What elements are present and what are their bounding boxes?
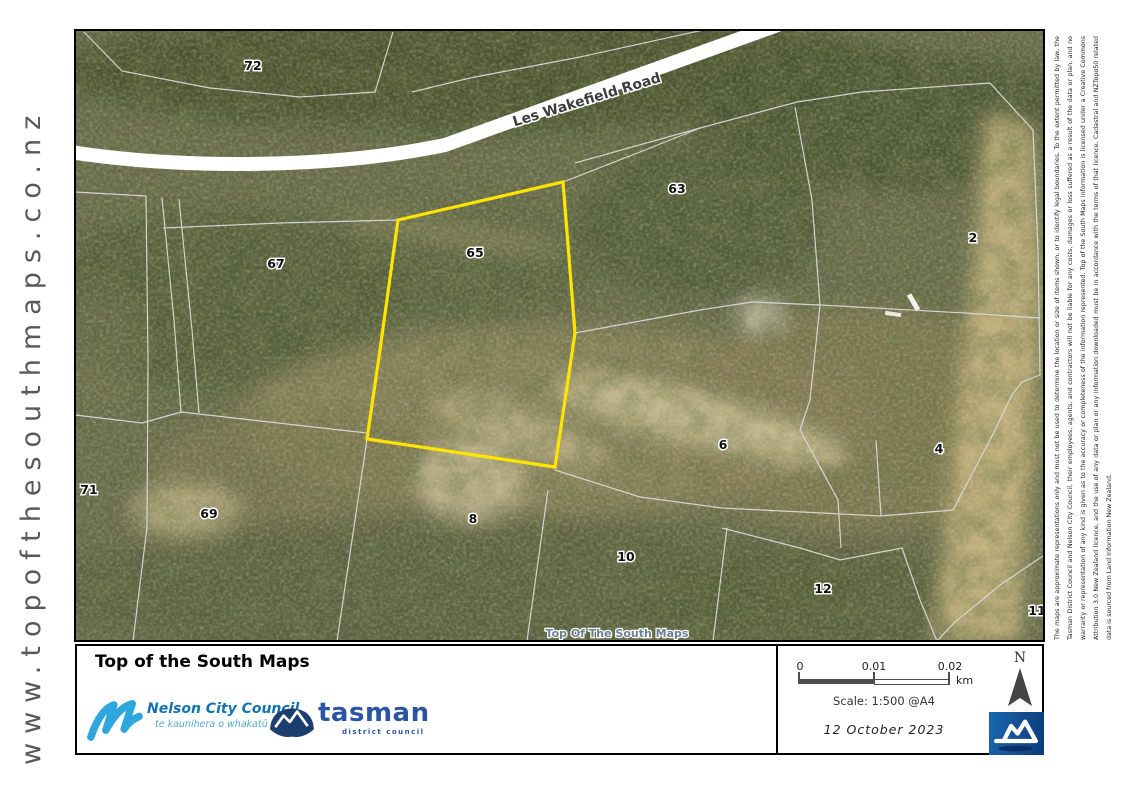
parcel-label: 12 <box>814 581 831 596</box>
nelson-swoosh-icon <box>85 698 145 744</box>
top-of-the-south-maps-logo <box>989 712 1044 755</box>
scale-bar-empty-segment <box>874 679 950 685</box>
scale-bar <box>798 676 950 686</box>
footer-panel: Top of the South Maps Nelson City Counci… <box>75 644 1044 755</box>
parcel-label: 8 <box>469 511 478 526</box>
parcel-label: 2 <box>969 230 978 245</box>
parcel-label: 4 <box>935 441 944 456</box>
parcel-label: 10 <box>617 549 635 564</box>
aerial-imagery: 72 63 65 67 2 71 69 8 6 10 12 4 11 Les W… <box>30 1 1100 662</box>
nelson-city-council-logo: Nelson City Council te kaunihera o whaka… <box>85 698 280 748</box>
tasman-mountain-icon <box>270 702 316 744</box>
parcel-label: 69 <box>200 506 217 521</box>
scale-ratio-text: Scale: 1:500 @A4 <box>833 694 935 708</box>
scale-tick <box>873 672 875 684</box>
map-date: 12 October 2023 <box>824 722 945 737</box>
map-watermark: Top Of The South Maps <box>546 627 689 640</box>
parcel-label: 71 <box>80 482 97 497</box>
scale-bar-filled-segment <box>798 679 874 684</box>
mountain-logo-icon <box>989 712 1044 755</box>
scale-tick <box>948 672 950 684</box>
scale-label-0: 0 <box>797 660 804 673</box>
parcel-label: 67 <box>267 256 284 271</box>
parcel-label: 63 <box>668 181 685 196</box>
north-arrow-icon <box>1005 666 1035 708</box>
parcel-label: 65 <box>466 245 483 260</box>
tasman-logo-tagline: district council <box>342 728 425 736</box>
north-label: N <box>1005 650 1035 666</box>
footer-title: Top of the South Maps <box>95 652 310 672</box>
tasman-logo-name: tasman <box>318 698 430 728</box>
map-sheet: www.topofthesouthmaps.co.nz The maps are… <box>0 0 1122 794</box>
parcel-label: 72 <box>244 58 261 73</box>
north-arrow: N <box>1005 650 1035 710</box>
scale-label-end: 0.02 <box>938 660 963 673</box>
footer-divider <box>776 646 778 753</box>
nelson-logo-tagline: te kaunihera o whakatū <box>155 719 268 730</box>
scale-tick <box>798 672 800 684</box>
parcel-label: 6 <box>719 437 728 452</box>
scale-label-mid: 0.01 <box>862 660 887 673</box>
tasman-district-council-logo: tasman district council <box>270 702 490 750</box>
scale-unit-label: km <box>956 674 973 687</box>
